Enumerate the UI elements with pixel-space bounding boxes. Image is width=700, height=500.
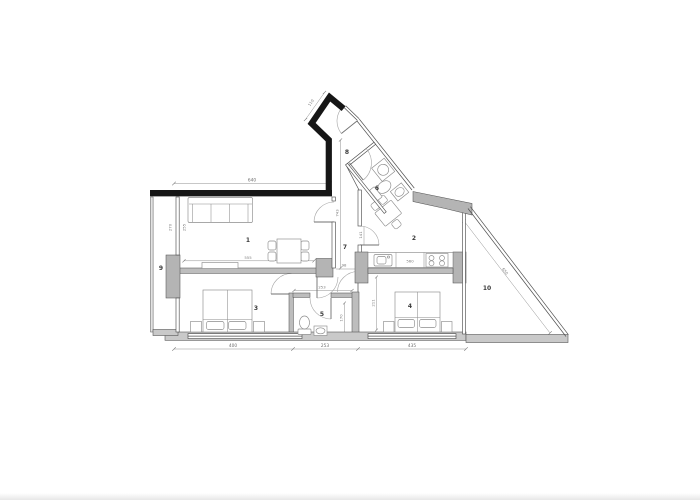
nightstand <box>384 322 395 333</box>
window-bedroom-b <box>368 334 456 339</box>
dim-vestibule-width: 253 <box>318 285 326 290</box>
sofa <box>188 198 253 223</box>
washbasin-entry-bath <box>390 183 408 201</box>
furniture-bedroom-b <box>384 292 453 332</box>
wall-bathroom-entry-west <box>346 142 376 166</box>
window-terrace-diagonal <box>468 207 568 337</box>
room-label-terrace: 10 <box>483 285 491 292</box>
toilet-small-bath <box>298 316 311 335</box>
room-label-living: 1 <box>246 237 250 244</box>
window-bedroom-a-west <box>176 298 179 332</box>
dim-kitchen-counter: 560 <box>406 259 414 264</box>
dim-hall-length: 743 <box>335 209 340 217</box>
room-label-bedroom-b: 4 <box>408 303 412 310</box>
nightstand <box>442 322 453 333</box>
window-bedroom-a <box>188 334 302 339</box>
room-label-bathroom-entry: 6 <box>375 185 379 192</box>
wall-post-hall <box>316 259 333 278</box>
dim-living-sideboard: 555 <box>244 255 252 260</box>
bed-a <box>203 290 252 332</box>
wall-kitchen-bedroom <box>368 268 453 273</box>
floorplan-svg: 640 400 253 435 110 650 555 743 98 <box>0 0 700 500</box>
dim-top-width: 640 <box>248 178 256 184</box>
page-bottom-shadow <box>0 493 700 500</box>
entry-door <box>337 107 357 133</box>
dim-kitchen-door: 141 <box>358 231 363 239</box>
washbasin-small-bath <box>314 326 327 336</box>
sink <box>374 255 392 267</box>
room-label-bedroom-a: 3 <box>254 305 258 312</box>
washing-machine <box>372 158 395 181</box>
living-room-door <box>314 202 334 222</box>
dim-bathroom-width: 170 <box>339 314 344 322</box>
dim-bottom-left: 400 <box>229 343 237 349</box>
floorplan-page: 640 400 253 435 110 650 555 743 98 <box>0 0 700 500</box>
wall-diagonal-masonry <box>413 192 472 216</box>
wall-black-entry <box>312 97 344 193</box>
dining-table <box>268 239 309 263</box>
nightstand <box>254 322 265 333</box>
dim-bedroom-b-depth: 211 <box>371 299 376 307</box>
dim-bottom-middle: 253 <box>321 343 329 349</box>
dim-entry-door: 110 <box>307 98 316 107</box>
room-label-entry: 8 <box>345 149 349 156</box>
dim-hall-width: 98 <box>342 262 347 267</box>
balcony-parapet <box>151 197 154 332</box>
kitchen-counter: 560 <box>368 253 453 268</box>
wall-post-counter-left <box>355 252 368 283</box>
room-label-kitchen: 2 <box>412 235 416 242</box>
stove <box>426 254 448 268</box>
dim-terrace-diagonal: 650 <box>501 267 510 276</box>
wall-post-balcony <box>166 255 180 298</box>
dim-balcony-side-a: 270 <box>168 223 173 231</box>
bedroom-a-door <box>271 274 292 295</box>
wall-terrace-bottom <box>466 335 568 343</box>
wall-terrace-west <box>463 208 466 334</box>
room-label-bathroom-small: 5 <box>320 311 324 318</box>
nightstand <box>191 322 202 333</box>
dim-balcony-side-b: 255 <box>182 223 187 231</box>
room-label-balcony: 9 <box>159 265 163 272</box>
sideboard <box>202 263 238 269</box>
dim-bottom-right: 435 <box>408 343 416 349</box>
bed-b <box>395 292 440 332</box>
room-label-hallway: 7 <box>343 244 347 251</box>
window-living-west <box>176 197 179 255</box>
wall-living-bedroom <box>178 268 318 273</box>
